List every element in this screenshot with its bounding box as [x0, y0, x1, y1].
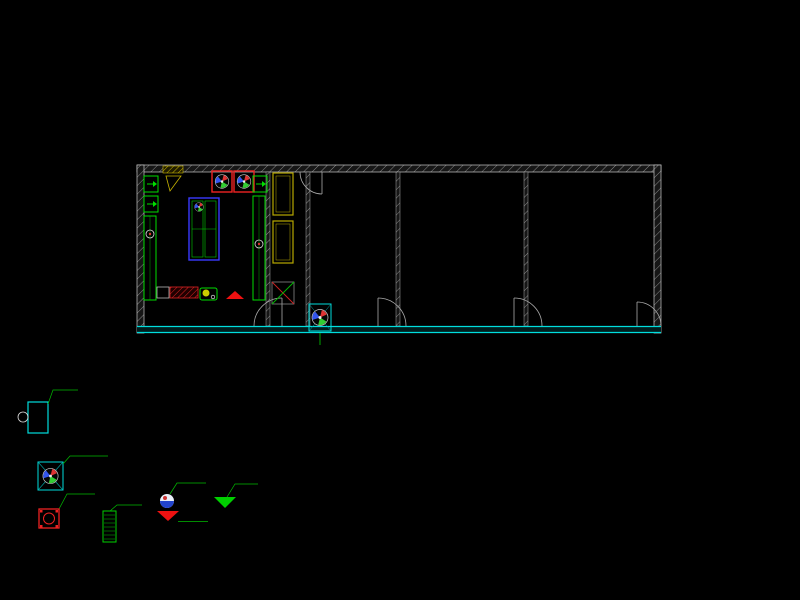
left-wall [137, 165, 144, 333]
power-socket-icon [160, 494, 174, 508]
fan-icon [215, 175, 229, 189]
partition-wall [306, 172, 310, 326]
fan-icon [237, 175, 251, 189]
fan-icon [43, 468, 58, 483]
reagent-bench [170, 287, 198, 298]
right-wall [654, 165, 661, 333]
partition-wall [396, 172, 400, 326]
partition-wall [524, 172, 528, 326]
fan-icon [312, 310, 328, 326]
fan-icon [195, 203, 204, 212]
cad-drawing-viewport[interactable] [0, 0, 800, 600]
cad-canvas [0, 0, 800, 600]
